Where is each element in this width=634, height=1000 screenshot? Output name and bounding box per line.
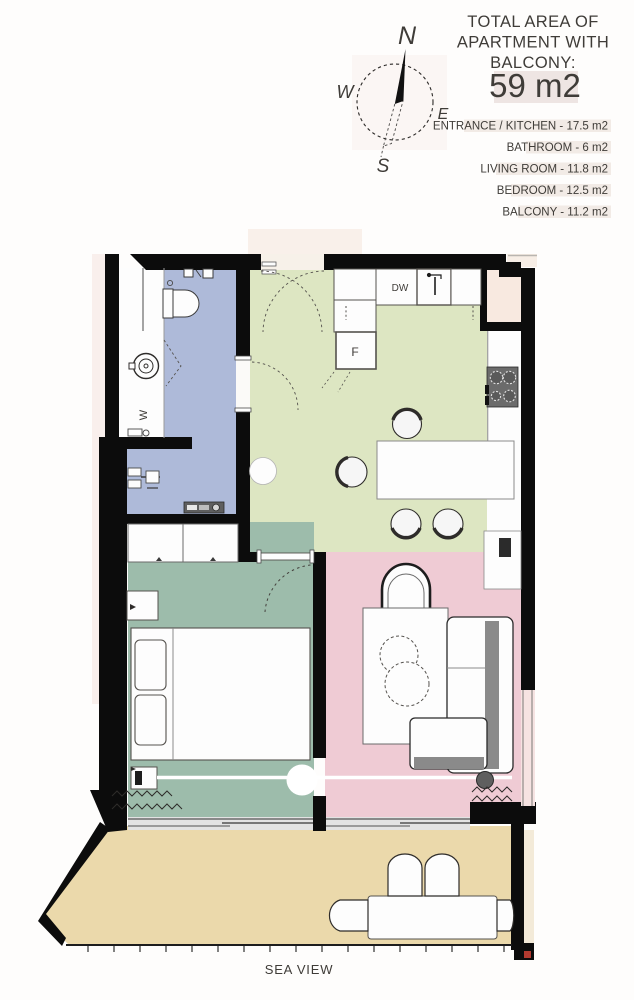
svg-text:E: E	[438, 106, 449, 123]
svg-text:DW: DW	[392, 283, 409, 294]
svg-text:ENTRANCE / KITCHEN - 17.5 m2: ENTRANCE / KITCHEN - 17.5 m2	[433, 121, 608, 133]
svg-text:59 m2: 59 m2	[489, 67, 581, 104]
svg-text:BATHROOM - 6 m2: BATHROOM - 6 m2	[507, 142, 608, 154]
svg-text:W: W	[337, 82, 356, 102]
svg-text:TOTAL AREA OF: TOTAL AREA OF	[467, 13, 598, 31]
svg-text:S: S	[377, 156, 390, 177]
svg-text:APARTMENT WITH: APARTMENT WITH	[457, 34, 609, 52]
svg-text:F: F	[351, 345, 358, 359]
svg-text:N: N	[398, 22, 417, 50]
svg-text:BEDROOM - 12.5 m2: BEDROOM - 12.5 m2	[497, 185, 608, 197]
svg-text:BALCONY - 11.2 m2: BALCONY - 11.2 m2	[502, 207, 608, 219]
svg-text:LIVING ROOM - 11.8 m2: LIVING ROOM - 11.8 m2	[480, 164, 608, 176]
svg-text:SEA VIEW: SEA VIEW	[265, 962, 334, 977]
svg-text:W: W	[138, 409, 150, 420]
